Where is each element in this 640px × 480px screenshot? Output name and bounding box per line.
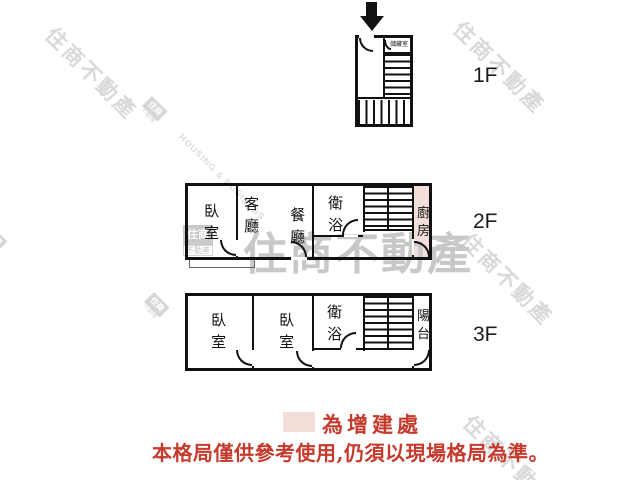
room-label-dining: 餐廳 — [289, 205, 306, 249]
door-opening — [312, 351, 314, 367]
wall — [312, 186, 314, 257]
door-opening — [236, 240, 238, 256]
room-label-storage: 儲藏室 — [390, 42, 408, 48]
balcony-door-arc — [414, 350, 430, 366]
stair-divider — [387, 296, 389, 348]
room-label-kitchen: 廚房 — [416, 205, 431, 241]
bedroom-door-arc — [220, 240, 236, 256]
room-label-living: 客廳 — [243, 194, 260, 238]
wall — [363, 229, 412, 231]
watermark-brand-topright: 住商不動產 — [447, 14, 553, 120]
room-label-bath: 衛浴 — [326, 302, 343, 346]
brand-logo-mark: 住商 — [0, 226, 8, 251]
room-label-bedroom: 臥室 — [203, 201, 220, 245]
legend-addition-swatch — [283, 412, 315, 432]
stairs-1f — [385, 54, 410, 97]
disclaimer-text: 本格局僅供參考使用,仍須以現場格局為準。 — [152, 437, 549, 466]
floor-plan-3f: 臥室 臥室 衛浴 陽台 — [185, 293, 432, 371]
entrance-arrow-shaft — [366, 2, 377, 16]
floor-plan-2f: 臥室 客廳 餐廳 衛浴 廚房 — [185, 183, 432, 260]
room-label-bath: 衛浴 — [327, 193, 344, 237]
floor-plan-canvas: 住商不動產 住商 不動產 HOUSING & BUSINESS 住商不動產 住商… — [0, 0, 640, 480]
wall — [358, 97, 410, 99]
bedroom-door-arc — [236, 350, 252, 366]
door-opening — [344, 235, 358, 237]
brand-logo-watermark: 住商 不動產 — [0, 226, 8, 256]
entry-door-arc — [359, 38, 373, 52]
floor-label-3f: 3F — [473, 323, 498, 347]
room-label-bedroom: 臥室 — [278, 310, 295, 354]
entrance-arrow-icon — [360, 16, 384, 31]
wall — [312, 348, 412, 350]
watermark-brand-topleft: 住商不動產 — [39, 20, 145, 126]
brand-logo-watermark: 住商 不動產 — [137, 96, 167, 126]
room-label-balcony: 陽台 — [416, 308, 431, 344]
floor-label-1f: 1F — [473, 64, 498, 88]
floor-plan-1f: 儲藏室 — [355, 35, 413, 127]
door-opening — [341, 348, 356, 350]
stair-divider — [387, 186, 389, 229]
balcony-ledge-2f — [189, 260, 255, 268]
legend-addition-label: 為增建處 — [322, 409, 422, 439]
room-label-bedroom: 臥室 — [210, 310, 227, 354]
bath-door-arc — [342, 219, 358, 235]
door-opening — [252, 350, 254, 366]
bedroom-door-arc — [296, 351, 312, 367]
garage-hatch — [358, 100, 410, 124]
kitchen-door-arc — [414, 241, 430, 257]
door-arc — [384, 40, 391, 50]
floor-label-2f: 2F — [473, 210, 498, 234]
brand-logo-watermark: 住商 不動產 — [139, 292, 169, 322]
door-opening — [291, 257, 307, 260]
